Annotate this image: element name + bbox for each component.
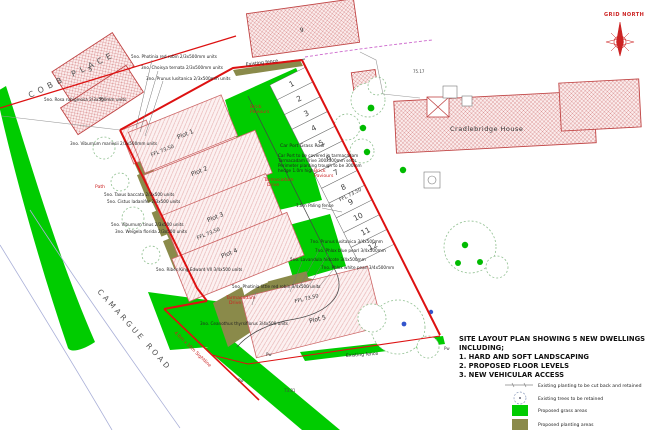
- legend-row-grass: Proposed grass areas: [512, 405, 588, 416]
- title-line-1: SITE LAYOUT PLAN SHOWING 5 NEW DWELLINGS: [459, 335, 645, 343]
- paling-fence-label: 1.8m Paling fence: [296, 203, 334, 208]
- note: 5no. Photinia red robin 2/3x500mm units: [131, 54, 217, 59]
- legend-label-1: Existing planting to be cut back and ret…: [538, 383, 642, 389]
- post-marker-3: Pw: [238, 378, 244, 383]
- note: 7no. Prunus lusitanica 3/4x500mm: [310, 239, 383, 244]
- note: 3no. Choisya ternata 2/3x500mm units: [141, 65, 223, 70]
- post-marker-2: Pw: [444, 346, 450, 351]
- title-block: SITE LAYOUT PLAN SHOWING 5 NEW DWELLINGS…: [459, 335, 645, 379]
- note: 3no. Weigela florida 2/3x500 units: [115, 229, 187, 234]
- note: hedge 1.0m high: [278, 168, 314, 173]
- path-label: Path: [95, 184, 105, 190]
- title-line-4: 2. PROPOSED FLOOR LEVELS: [459, 362, 569, 370]
- note: 7no. Phlox blue pearl 3/4x500mm: [315, 248, 386, 253]
- canopy-structure: [427, 97, 449, 117]
- note: 5no. Ribes King Edward VII 3/4x500 units: [156, 267, 242, 272]
- legend-row-trees: Existing trees to be retained: [514, 392, 603, 404]
- note: 5no. Viburnum tinus 2/3x500 units: [111, 222, 184, 227]
- spot-level-2: 73.81: [284, 388, 296, 393]
- legend-label-4: Proposed planting areas: [538, 422, 594, 428]
- note: 5no. Cistus ladanifer 2/3x500 units: [107, 199, 180, 204]
- cradlebridge-house-wing: [559, 79, 641, 131]
- legend-row-planting: Proposed planting areas: [512, 419, 594, 430]
- title-line-2: INCLUDING;: [459, 344, 504, 352]
- legend-row-planting-line: Existing planting to be cut back and ret…: [505, 383, 642, 389]
- tarmacadam-label-2b: Drive: [229, 300, 241, 306]
- note: 3no. Ceanothus thyrsiflorus 3/4x500 unit…: [200, 321, 288, 326]
- site-plan-svg: 1 2 3 4 5 6 7 8 9 10 11 12: [0, 0, 645, 430]
- note: 5no. Taxus baccata 2/3x500 units: [104, 192, 174, 197]
- note: 5no. Lavandula hidcote 3/4x500mm: [290, 257, 366, 262]
- post-marker-1: Pw: [266, 352, 272, 357]
- note: 3no. Viburnum mariesii 2/3x500mm units: [70, 141, 157, 146]
- legend-tree-dot: [519, 397, 521, 399]
- note: 5no. Rosa rubiginosa 2/3x500mm units: [44, 97, 126, 102]
- legend: Existing planting to be cut back and ret…: [505, 383, 642, 430]
- note: 7no. Phlox white pearl 3/4x500mm: [321, 265, 394, 270]
- legend-label-2: Existing trees to be retained: [538, 396, 603, 402]
- compass-star-icon: [606, 22, 634, 56]
- note: 3no. Prunus lusitanica 2/3x500mm units: [146, 76, 231, 81]
- tarmacadam-label-1b: Drive: [267, 182, 279, 188]
- site-layout-plan: 1 2 3 4 5 6 7 8 9 10 11 12: [0, 0, 645, 430]
- legend-planting-swatch: [512, 419, 528, 430]
- brick-label-1b: Paviours: [250, 109, 270, 115]
- title-line-5: 3. NEW VEHICULAR ACCESS: [459, 371, 564, 379]
- spot-level-1: 75.17: [413, 69, 425, 74]
- north-compass: GRID NORTH: [604, 12, 644, 56]
- legend-grass-swatch: [512, 405, 528, 416]
- legend-line-sample: [505, 383, 533, 387]
- brick-label-2b: Paviours: [314, 173, 334, 179]
- cradlebridge-house-label: Cradlebridge House: [450, 125, 523, 133]
- note: 5no. Photinia little red robin 3/4x500 u…: [232, 284, 320, 289]
- carport-roof-label: Car Port Grass Roof: [280, 143, 325, 149]
- legend-label-3: Proposed grass areas: [538, 408, 588, 414]
- title-line-3: 1. HARD AND SOFT LANDSCAPING: [459, 353, 589, 361]
- grid-north-label: GRID NORTH: [604, 12, 644, 18]
